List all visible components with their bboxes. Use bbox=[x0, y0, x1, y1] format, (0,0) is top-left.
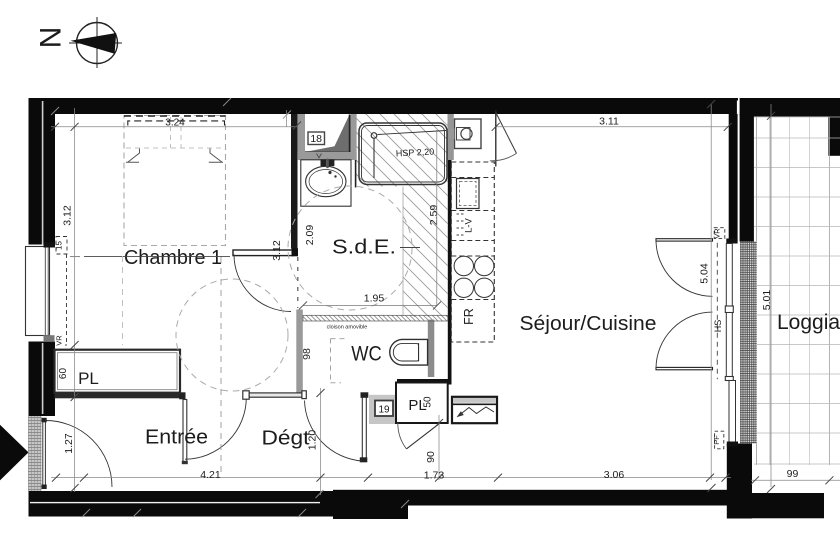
svg-text:S.d.E.: S.d.E. bbox=[332, 237, 396, 259]
svg-text:HSP 2,20: HSP 2,20 bbox=[396, 147, 435, 159]
svg-text:cloison amovible: cloison amovible bbox=[327, 325, 368, 331]
svg-text:4.21: 4.21 bbox=[200, 469, 221, 481]
svg-text:50: 50 bbox=[423, 396, 434, 408]
svg-text:15: 15 bbox=[55, 241, 64, 250]
svg-text:98: 98 bbox=[301, 348, 313, 360]
svg-text:N: N bbox=[35, 27, 68, 49]
svg-text:FR: FR bbox=[462, 308, 476, 325]
svg-text:VR: VR bbox=[713, 228, 722, 239]
svg-text:WC: WC bbox=[351, 343, 382, 366]
svg-text:Dégt: Dégt bbox=[262, 428, 310, 450]
svg-text:3.12: 3.12 bbox=[62, 205, 74, 226]
svg-text:Chambre 1: Chambre 1 bbox=[124, 247, 222, 269]
svg-text:PL: PL bbox=[78, 369, 99, 388]
svg-text:5.01: 5.01 bbox=[761, 290, 773, 311]
svg-text:60: 60 bbox=[58, 368, 69, 380]
svg-text:PF: PF bbox=[712, 435, 721, 445]
svg-text:2.59: 2.59 bbox=[428, 205, 440, 226]
svg-text:L-V: L-V bbox=[464, 217, 475, 232]
svg-text:2.09: 2.09 bbox=[304, 225, 316, 246]
svg-text:Entrée: Entrée bbox=[145, 427, 208, 449]
svg-text:3.11: 3.11 bbox=[599, 116, 619, 128]
svg-text:Séjour/Cuisine: Séjour/Cuisine bbox=[520, 313, 657, 335]
svg-text:19: 19 bbox=[378, 405, 390, 416]
svg-text:1.27: 1.27 bbox=[63, 433, 75, 454]
svg-text:HS: HS bbox=[713, 320, 723, 333]
svg-text:3.12: 3.12 bbox=[271, 240, 283, 261]
svg-text:3.06: 3.06 bbox=[604, 469, 625, 481]
svg-text:Loggia: Loggia bbox=[777, 311, 840, 334]
svg-text:1.95: 1.95 bbox=[364, 293, 385, 305]
svg-text:99: 99 bbox=[787, 468, 799, 480]
svg-text:1.20: 1.20 bbox=[307, 430, 319, 451]
svg-text:5.04: 5.04 bbox=[699, 263, 711, 284]
svg-text:18: 18 bbox=[310, 133, 322, 145]
svg-text:VR: VR bbox=[55, 335, 64, 346]
svg-text:90: 90 bbox=[425, 451, 437, 463]
svg-text:1.73: 1.73 bbox=[424, 469, 445, 481]
